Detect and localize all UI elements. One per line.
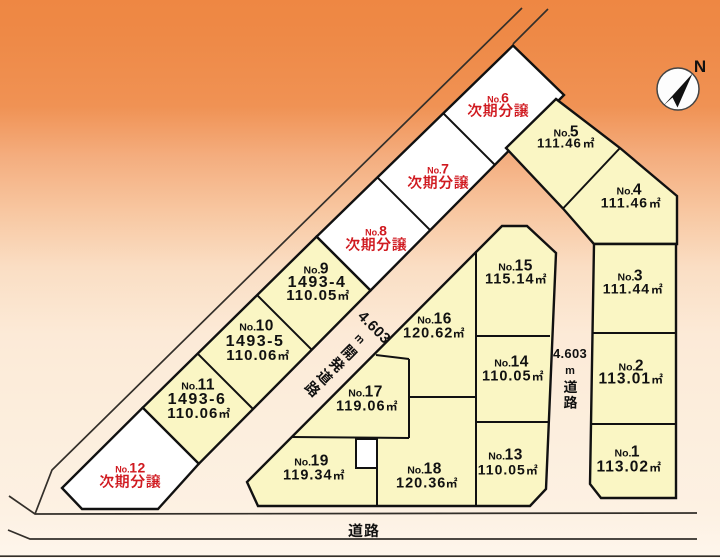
svg-text:110.05: 110.05 (286, 287, 337, 304)
svg-text:111.44: 111.44 (603, 281, 650, 297)
svg-text:111.46: 111.46 (537, 136, 582, 151)
svg-text:No.: No. (115, 465, 130, 475)
svg-text:8: 8 (379, 223, 387, 239)
svg-text:No.: No. (487, 95, 502, 105)
svg-text:6: 6 (501, 90, 509, 106)
svg-text:111.46: 111.46 (601, 195, 648, 211)
svg-text:119.06: 119.06 (336, 399, 386, 415)
svg-text:No.: No. (427, 166, 442, 176)
svg-text:12: 12 (129, 460, 146, 476)
svg-text:110.05: 110.05 (482, 369, 532, 385)
svg-text:120.36: 120.36 (396, 476, 446, 492)
svg-text:No.: No. (365, 228, 380, 238)
svg-text:110.05: 110.05 (478, 462, 526, 478)
svg-text:110.06: 110.06 (226, 347, 277, 364)
svg-text:4.603: 4.603 (553, 346, 587, 361)
svg-text:m: m (565, 365, 575, 377)
svg-text:7: 7 (441, 161, 449, 177)
svg-text:113.02: 113.02 (597, 459, 650, 476)
svg-text:113.01: 113.01 (599, 371, 652, 388)
svg-text:119.34: 119.34 (283, 468, 333, 484)
svg-text:110.06: 110.06 (167, 405, 218, 422)
svg-text:115.14: 115.14 (485, 272, 535, 288)
svg-text:N: N (694, 57, 706, 76)
svg-text:No.: No. (239, 322, 256, 334)
svg-text:120.62: 120.62 (403, 326, 453, 342)
